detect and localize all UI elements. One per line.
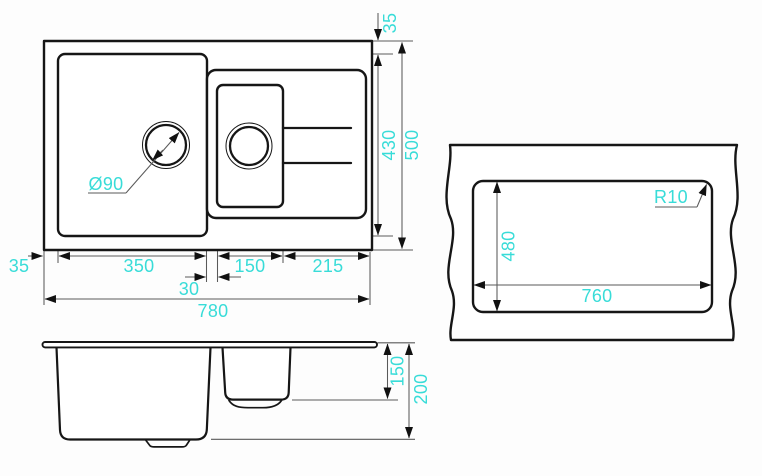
sink-technical-drawing: Ø90 35 430 500 35 350 150 215 30 780 bbox=[0, 0, 762, 476]
dim-label-corner-radius: R10 bbox=[654, 187, 688, 207]
main-bowl-drain-profile bbox=[146, 441, 190, 447]
half-bowl-drain-profile bbox=[229, 401, 282, 408]
side-view: 150 200 bbox=[43, 342, 432, 447]
dim-label-bowl-gap: 30 bbox=[179, 279, 200, 299]
top-view-vertical-dimensions: 35 430 500 bbox=[378, 13, 422, 249]
dim-label-rim-offset-top: 35 bbox=[380, 13, 400, 34]
main-bowl bbox=[58, 54, 207, 236]
top-view-horizontal-dimensions: 35 350 150 215 30 780 bbox=[9, 256, 369, 321]
main-bowl-profile bbox=[57, 348, 211, 440]
drawing-canvas: Ø90 35 430 500 35 350 150 215 30 780 bbox=[0, 0, 762, 476]
dim-label-rim-offset-left: 35 bbox=[9, 256, 30, 276]
dim-label-main-bowl-depth: 200 bbox=[411, 374, 431, 405]
dim-label-bowl-zone-height: 430 bbox=[379, 130, 399, 161]
dim-label-overall-depth: 500 bbox=[402, 130, 422, 161]
cutout-view: 480 760 R10 bbox=[446, 145, 737, 340]
dim-label-half-bowl-depth: 150 bbox=[388, 356, 408, 387]
side-view-dimensions: 150 200 bbox=[388, 344, 432, 438]
dim-label-drain-diameter: Ø90 bbox=[89, 174, 124, 194]
half-bowl bbox=[217, 85, 283, 207]
dim-label-drainer-width: 215 bbox=[313, 256, 344, 276]
top-view: Ø90 35 430 500 35 350 150 215 30 780 bbox=[9, 13, 422, 321]
half-bowl-profile bbox=[223, 348, 291, 400]
sink-flange-profile bbox=[43, 342, 378, 347]
dim-label-cutout-width: 760 bbox=[582, 286, 613, 306]
dim-label-main-bowl-width: 350 bbox=[124, 256, 155, 276]
dim-label-half-bowl-width: 150 bbox=[235, 256, 266, 276]
dim-label-cutout-height: 480 bbox=[499, 231, 519, 262]
dim-label-overall-width: 780 bbox=[198, 301, 229, 321]
